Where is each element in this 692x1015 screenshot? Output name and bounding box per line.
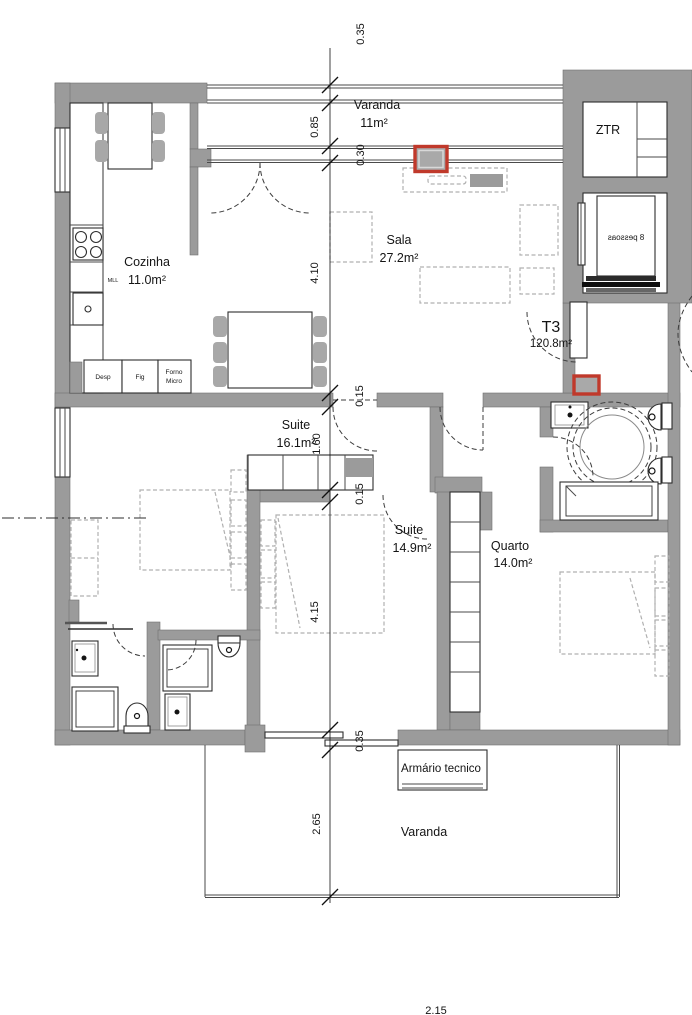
- dining-table: [213, 312, 327, 388]
- room-label-suite1: Suite: [282, 418, 311, 432]
- kitchen-top-wall: [55, 83, 207, 103]
- suite1-bathroom: [65, 623, 150, 733]
- dim-sala-410: 4.10: [309, 262, 321, 283]
- chair: [95, 112, 108, 134]
- double-door-left: [210, 163, 260, 213]
- room-label-quarto: Quarto: [491, 539, 529, 553]
- sofa: [420, 267, 510, 303]
- dim-wall-015b: 0.15: [354, 483, 366, 504]
- toilet-tank: [662, 457, 672, 483]
- suite1-furniture: [71, 470, 246, 596]
- room-area-suite2: 14.9m²: [393, 541, 432, 555]
- dim-top-085: 0.85: [309, 116, 321, 137]
- tv: [470, 174, 503, 187]
- kitchen-table: [95, 103, 165, 169]
- room-area-varanda-top: 11m²: [360, 116, 388, 130]
- toilet: [126, 703, 148, 726]
- quarto-furniture: [560, 556, 669, 676]
- room-label-ztr: ZTR: [596, 123, 620, 137]
- elevator-sill: [586, 276, 656, 281]
- shower: [72, 687, 118, 731]
- ztr-room: [583, 102, 667, 177]
- entry-door-recess: [570, 302, 587, 358]
- room-area-cozinha: 11.0m²: [128, 273, 166, 287]
- chair: [152, 112, 165, 134]
- quarto-door-swing: [440, 407, 483, 450]
- dim-balcony-265: 2.65: [311, 813, 323, 834]
- room-label-sala: Sala: [386, 233, 411, 247]
- cabinet-label-desp: Desp: [95, 374, 111, 381]
- cabinet-label-micro: Micro: [166, 378, 182, 385]
- dim-wall-015a: 0.15: [354, 385, 366, 406]
- corridor-wardrobe: [450, 492, 480, 712]
- dim-top-035: 0.35: [355, 23, 367, 44]
- room-area-sala: 27.2m²: [380, 251, 419, 265]
- cabinet-label-forno: Forno: [166, 369, 183, 376]
- room-label-varanda-bottom: Varanda: [401, 825, 447, 839]
- floor-plan-page: 8 pessoas: [0, 0, 692, 1015]
- chair: [95, 140, 108, 162]
- label-mll: MLL: [108, 278, 119, 284]
- bed: [560, 572, 655, 654]
- floor-plan-svg: 8 pessoas: [0, 0, 692, 1015]
- label-armario-tecnico: Armário tecnico: [401, 763, 481, 775]
- shower: [163, 645, 212, 691]
- armchair: [330, 212, 372, 262]
- bed: [140, 490, 230, 570]
- suite-window: [55, 408, 70, 477]
- side-table: [520, 268, 554, 294]
- door-swings: [113, 163, 593, 670]
- dim-bottom-215: 2.15: [425, 1005, 446, 1015]
- cabinet-label-fig: Fig: [135, 374, 144, 381]
- double-door-right: [260, 163, 310, 213]
- chair: [152, 140, 165, 162]
- room-label-suite2: Suite: [395, 523, 424, 537]
- suite2-bathroom: [163, 636, 240, 730]
- room-label-varanda-top: Varanda: [354, 98, 400, 112]
- dim-hall-160: 1.60: [311, 433, 323, 454]
- room-area-quarto: 14.0m²: [494, 556, 533, 570]
- dim-top-030: 0.30: [355, 144, 367, 165]
- toilet-tank: [662, 403, 672, 429]
- bottom-balcony: [205, 732, 620, 898]
- unit-area-label: 120.8m²: [530, 338, 572, 350]
- suite1-door-swing: [333, 407, 377, 451]
- sala-furniture: [330, 168, 558, 303]
- dim-bottom-035: 0.35: [354, 730, 366, 751]
- bathroom-door-swing: [553, 437, 593, 477]
- cabinet-forno-micro: [158, 360, 191, 393]
- suite2-furniture: [261, 515, 384, 633]
- elevator: 8 pessoas: [578, 193, 667, 293]
- main-bathroom: [551, 402, 672, 520]
- room-label-cozinha: Cozinha: [124, 255, 170, 269]
- elevator-capacity-label: 8 pessoas: [608, 233, 644, 242]
- bathtub: [560, 482, 658, 520]
- unit-code-label: T3: [542, 319, 561, 336]
- kitchen-window: [55, 128, 70, 192]
- dim-rooms-415: 4.15: [309, 601, 321, 622]
- toilet: [218, 643, 240, 657]
- highlight-box-entry-wall[interactable]: [574, 376, 599, 394]
- room-area-suite1: 16.1m²: [277, 436, 316, 450]
- armchair: [520, 205, 558, 255]
- sliding-door: [265, 732, 343, 738]
